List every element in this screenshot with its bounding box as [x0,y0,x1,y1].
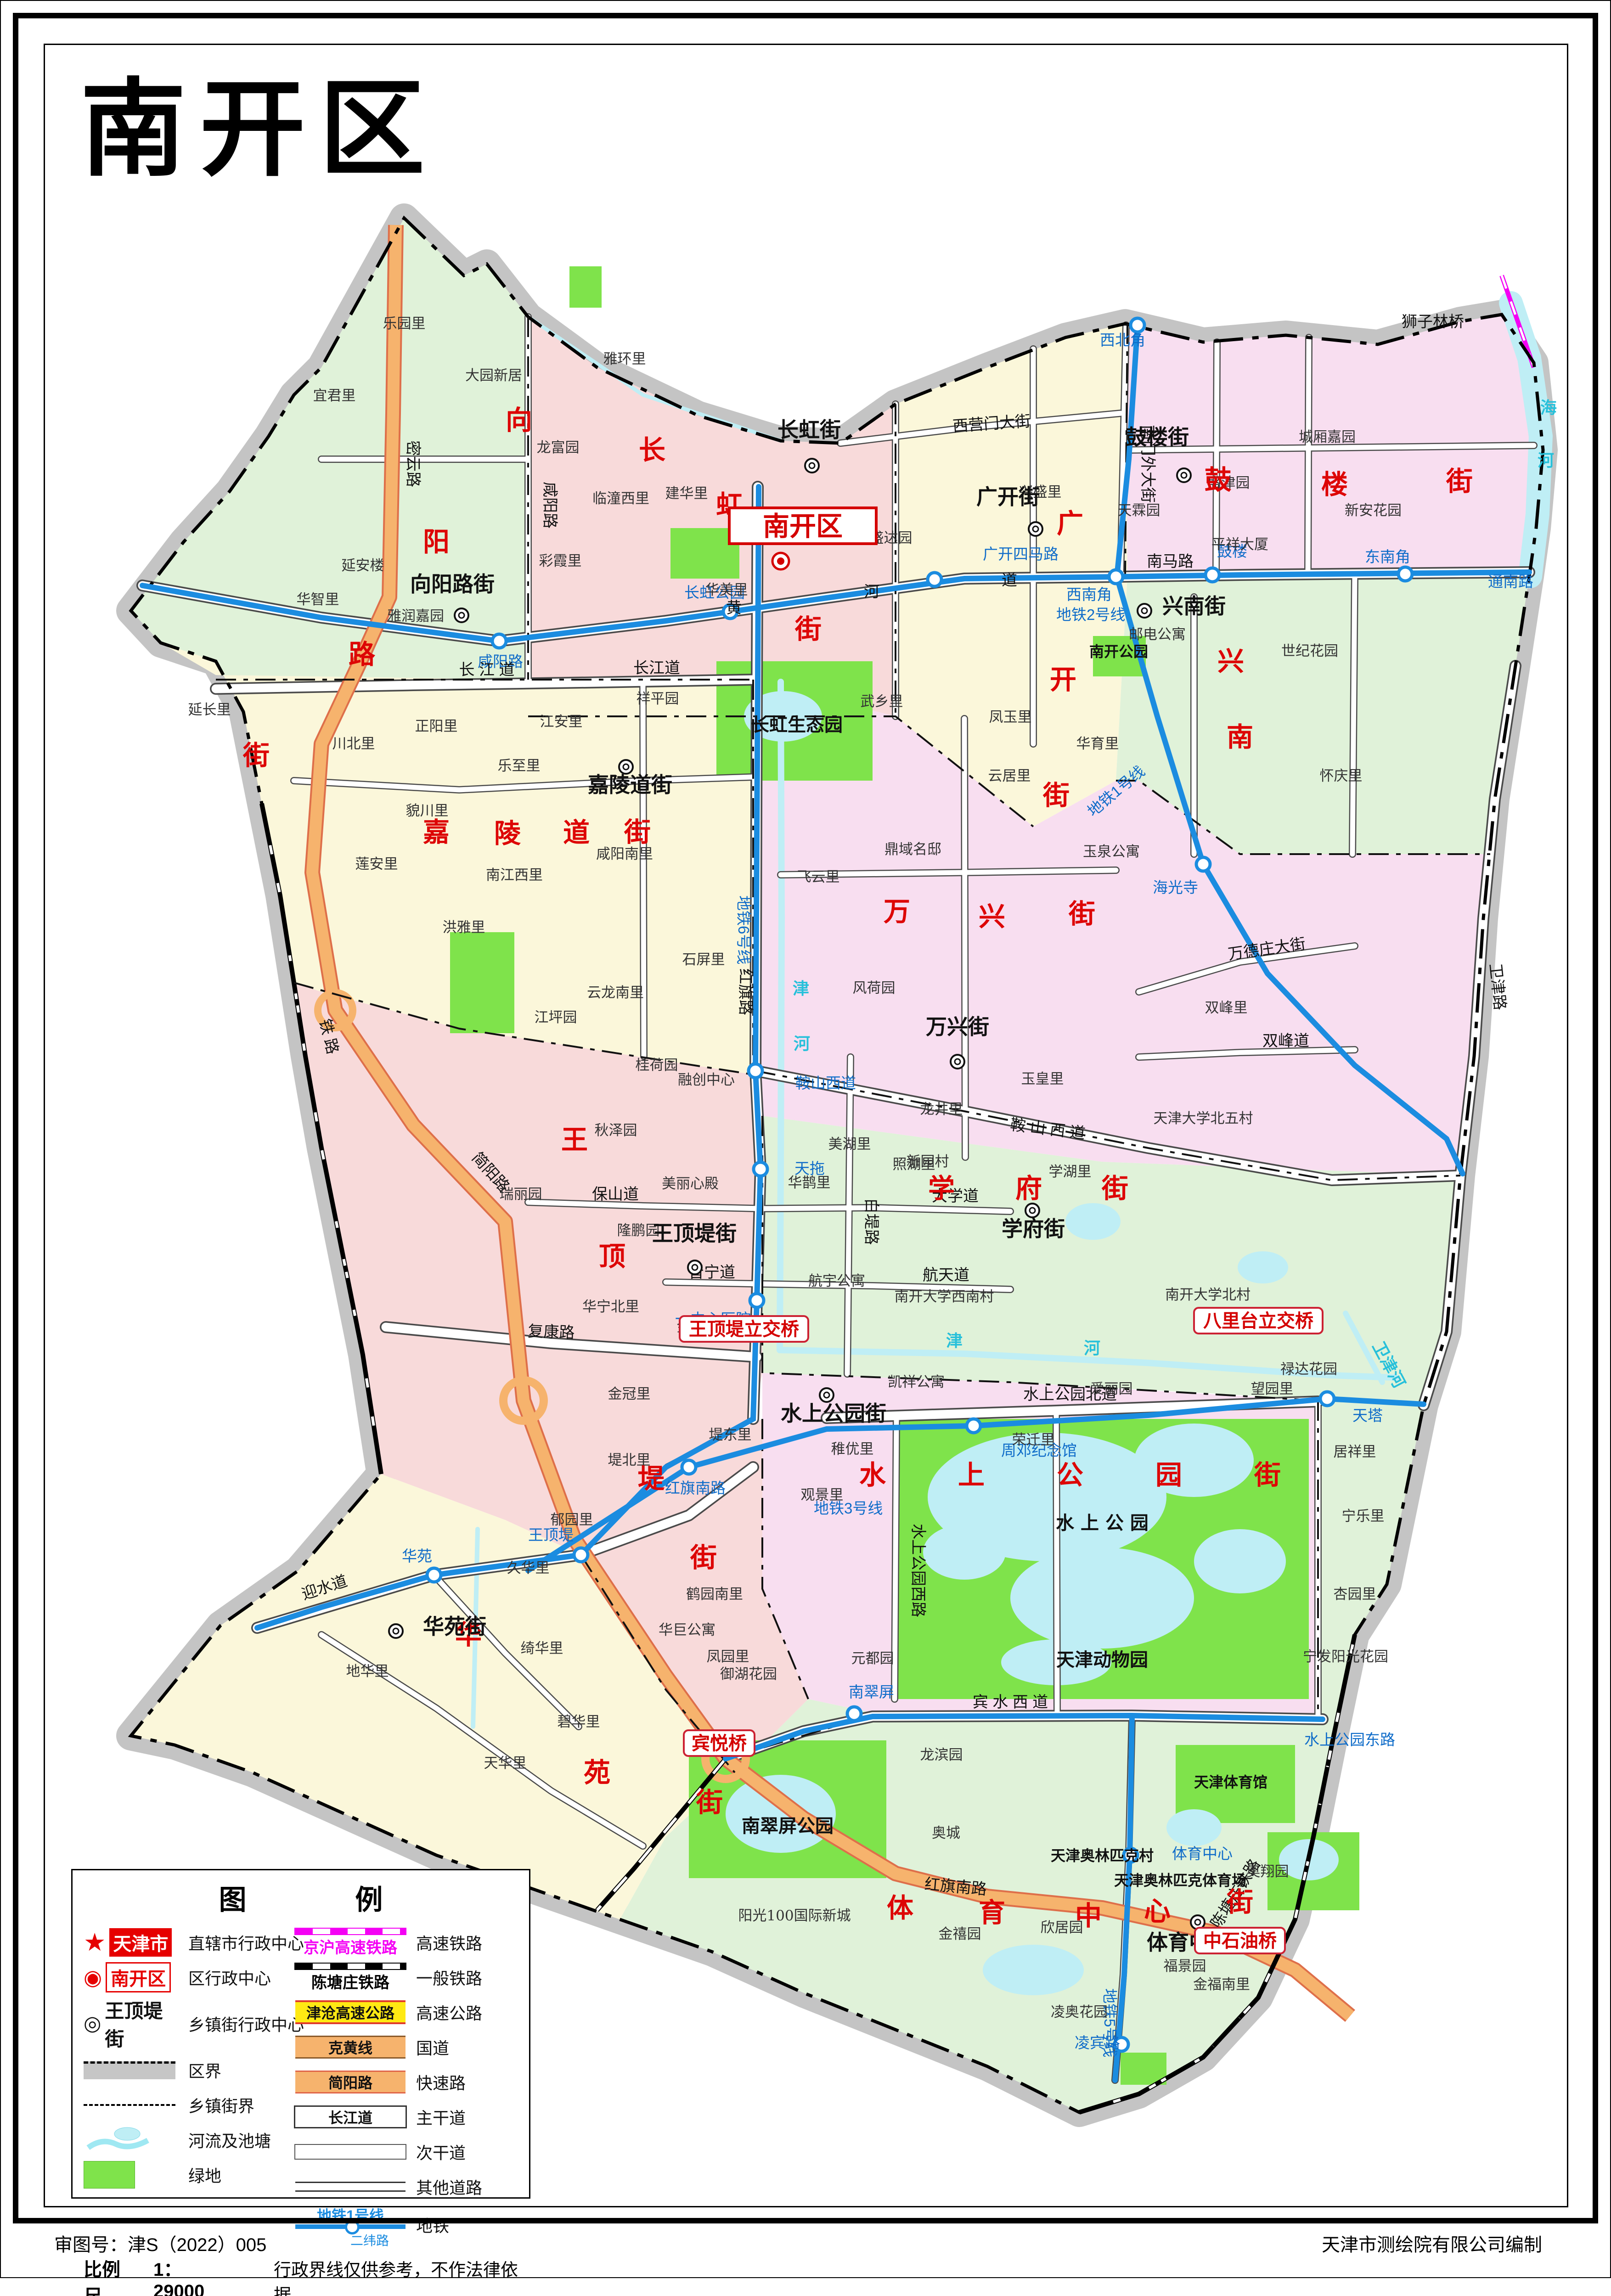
page-title: 南开区 [80,44,439,197]
neighborhood-label: 乐至里 [498,758,541,774]
metro-line-label: 水上公园东路 [1304,1731,1395,1748]
subdistrict-char-鼓楼街: 街 [1446,466,1473,497]
neighborhood-label: 金福南里 [1193,1976,1250,1993]
subdistrict-char-嘉陵道街: 嘉 [423,816,450,848]
park-label: 长虹生态园 [751,714,843,736]
legend-item: 简阳路快速路 [293,2065,518,2099]
station-label: 体育中心 [1172,1845,1233,1862]
neighborhood-label: 双峰里 [1205,1000,1248,1016]
neighborhood-label: 邮电公寓 [1129,626,1186,643]
station-label: 海光寺 [1153,879,1198,896]
subdistrict-char-学府街: 府 [1015,1173,1042,1204]
legend-right-column: 京沪高速铁路高速铁路陈塘庄铁路一般铁路津沧高速公路高速公路克黄线国道简阳路快速路… [293,1924,518,2246]
station-一中心医院 [750,1294,764,1307]
neighborhood-label: 咸阳南里 [596,846,653,862]
subdistrict-char-兴南街: 兴 [1217,646,1244,677]
legend-item: 次干道 [293,2135,518,2168]
subdistrict-char-体育中心街: 体 [887,1892,913,1924]
park-label: 天津体育馆 [1194,1773,1267,1791]
neighborhood-label: 华美里 [705,582,748,598]
subdistrict-char-水上公园街: 水 [859,1459,886,1491]
neighborhood-label: 雅润嘉园 [387,608,444,625]
neighborhood-label: 武乡里 [861,693,903,710]
neighborhood-label: 居祥里 [1334,1444,1376,1460]
legend-item: 京沪高速铁路高速铁路 [293,1926,518,1959]
neighborhood-label: 云居里 [988,768,1031,784]
neighborhood-label: 华智里 [297,591,339,608]
neighborhood-label: 御湖花园 [720,1666,777,1683]
road-label: 南马路 [1147,553,1194,570]
legend-item: 区界 [84,2054,281,2087]
subdistrict-char-鼓楼街: 鼓 [1205,464,1232,495]
subdistrict-char-广开街: 街 [1042,780,1070,811]
legend-item: 津沧高速公路高速公路 [293,1996,518,2029]
neighborhood-label: 云龙南里 [587,985,644,1001]
subdistrict-char-长虹街: 街 [794,613,822,645]
station-label: 西南角 [1066,586,1112,603]
station-label: 西北角 [1100,332,1145,349]
station-鞍山西道 [749,1064,762,1078]
scale-value: 1：29000 [153,2255,228,2296]
river-label: 津 [793,979,809,998]
district-center-name: 南开区 [763,512,843,541]
subdistrict-char-嘉陵道街: 陵 [494,818,521,849]
green-area-icon [84,2161,135,2189]
subdistrict-char-嘉陵道街: 道 [563,817,590,848]
metro-line-label: 通南路 [1488,573,1533,590]
neighborhood-label: 正阳里 [415,718,458,735]
legend-item: ◎王顶堤街乡镇街行政中心 [84,1996,281,2052]
station-东南角 [1398,567,1412,581]
legend-title: 图 例 [84,1878,518,1918]
city-sample: 天津市 [109,1928,172,1957]
footer-publisher: 天津市测绘院有限公司编制 [1322,2230,1542,2257]
subdistrict-name-广开街: 广开街 [976,485,1040,509]
subdistrict-name-长虹街: 长虹街 [777,418,841,442]
neighborhood-label: 郁园里 [551,1512,593,1528]
subdistrict-name-华苑街: 华苑街 [423,1615,486,1638]
river-label: 津 [946,1331,963,1350]
neighborhood-label: 华宁北里 [582,1299,639,1315]
road-label: 红旗路 [737,968,754,1015]
road-label: 长江道 [633,659,680,677]
station-红旗南路 [682,1460,696,1474]
road-label: 狮子林桥 [1402,313,1464,331]
neighborhood-label: 航宇公寓 [808,1273,865,1289]
subdistrict-char-向阳路街: 阳 [423,526,450,557]
neighborhood-label: 建华里 [665,485,708,502]
metro-line-label: 地铁6号线 [735,895,752,964]
bridge-label: 八里台立交桥 [1203,1311,1313,1331]
subdistrict-char-王顶堤街: 王 [561,1124,588,1155]
river-icon [84,2124,152,2156]
neighborhood-label: 凌奥花园 [1051,2004,1108,2020]
neighborhood-label: 南开大学北村 [1165,1287,1250,1303]
neighborhood-label: 秋泽园 [595,1122,637,1139]
road-label: 宾 水 西 道 [973,1694,1048,1711]
legend-item: 长江道主干道 [293,2100,518,2133]
legend-note: 行政界线仅供参考，不作法律依据 [274,2256,518,2296]
road-label: 双峰道 [1262,1032,1309,1050]
neighborhood-label: 金冠里 [608,1386,651,1402]
subdistrict-name-万兴街: 万兴街 [926,1015,989,1039]
neighborhood-label: 彩霞里 [539,553,582,569]
fast-road-icon: 简阳路 [293,2071,408,2093]
subdistrict-char-体育中心街: 心 [1144,1896,1171,1927]
neighborhood-label: 南江西里 [486,867,543,884]
district-sample: 南开区 [106,1962,171,1992]
neighborhood-label: 鼎域名邸 [884,841,941,858]
subdistrict-char-兴南街: 南 [1227,721,1253,753]
station-天拖 [754,1162,767,1176]
neighborhood-label: 美湖里 [828,1136,871,1153]
neighborhood-label: 延长里 [188,702,231,718]
station-华苑 [427,1568,441,1582]
subdistrict-char-王顶堤街: 堤 [638,1463,665,1494]
neighborhood-label: 学湖里 [1049,1164,1092,1180]
neighborhood-label: 凤玉里 [989,709,1032,726]
road-label: 黄 [726,599,742,617]
legend-item: 地铁1号线二纬路地铁 [293,2205,518,2245]
neighborhood-label: 南开大学西南村 [895,1289,994,1305]
station-西南角 [1109,570,1123,584]
neighborhood-label: 宁发阳光花园 [1303,1649,1388,1665]
road-label: 水上公园西路 [909,1524,927,1617]
neighborhood-label: 天津大学北五村 [1154,1110,1253,1127]
metro-icon: 地铁1号线二纬路 [293,2205,408,2245]
legend-item: 克黄线国道 [293,2031,518,2064]
neighborhood-label: 玉泉公寓 [1083,844,1140,860]
subdistrict-char-水上公园街: 上 [958,1459,985,1491]
station-天塔 [1320,1392,1334,1406]
neighborhood-label: 城厢嘉园 [1299,429,1356,445]
neighborhood-label: 祥平园 [637,691,679,707]
secondary-road-icon [293,2144,408,2160]
neighborhood-label: 阳光100国际新城 [738,1908,851,1924]
subdistrict-char-王顶堤街: 顶 [599,1241,625,1272]
metro-line-label: 地铁5号线 [1101,1988,1118,2057]
legend-left-column: ★天津市直辖市行政中心◉南开区区行政中心◎王顶堤街乡镇街行政中心区界乡镇街界河流… [84,1924,281,2246]
subdistrict-char-广开街: 广 [1057,508,1083,539]
bridge-label: 宾悦桥 [692,1733,747,1754]
road-label: 咸阳路 [541,482,558,529]
subdistrict-char-嘉陵道街: 街 [624,816,651,848]
subdistrict-name-学府街: 学府街 [1002,1217,1065,1241]
neighborhood-label: 地华里 [346,1663,389,1680]
neighborhood-label: 鹤园南里 [686,1586,743,1603]
neighborhood-label: 龙井里 [920,1101,963,1118]
neighborhood-label: 奥城 [932,1825,960,1841]
river-label: 海 [1540,398,1557,417]
park-label: 南翠屏公园 [742,1815,834,1837]
neighborhood-label: 元都园 [851,1650,894,1667]
neighborhood-label: 石屏里 [682,951,725,968]
subdistrict-char-华苑街: 苑 [584,1757,610,1788]
town-sample: 王顶堤街 [105,1996,180,2052]
neighborhood-label: 爱丽园 [1090,1381,1133,1397]
neighborhood-label: 世纪花园 [1281,643,1338,659]
national-road-icon: 克黄线 [293,2036,408,2059]
neighborhood-label: 玉皇里 [1021,1071,1064,1087]
station-label: 南翠屏 [849,1683,894,1700]
neighborhood-label: 桂荷园 [636,1057,678,1074]
legend-item: 绿地 [84,2158,281,2191]
subdistrict-char-向阳路街: 向 [506,405,532,436]
hsr-icon: 京沪高速铁路 [293,1928,408,1958]
subdistrict-char-学府街: 街 [1101,1173,1128,1204]
neighborhood-label: 宜君里 [313,388,356,404]
subdistrict-char-广开街: 开 [1050,664,1076,695]
subdistrict-char-华苑街: 街 [696,1787,723,1818]
neighborhood-label: 天华里 [484,1755,527,1772]
station-label: 红旗南路 [665,1480,726,1497]
footer-approval-number: 审图号：津S（2022）005 [54,2230,266,2257]
neighborhood-label: 凤园里 [707,1649,749,1665]
neighborhood-label: 荣迁里 [1012,1432,1055,1448]
neighborhood-label: 乐园里 [383,315,426,332]
subdistrict-char-向阳路街: 路 [349,639,376,670]
station-王顶堤 [574,1548,588,1562]
station-label: 华苑 [402,1548,432,1564]
town-center-icon: ◎ [84,2014,101,2034]
neighborhood-label: 绮华里 [521,1640,563,1657]
station-南翠屏 [847,1707,861,1721]
district-center-icon: ◉ [84,1967,102,1988]
road-label: 复康路 [528,1322,575,1342]
legend-item: ◉南开区区行政中心 [84,1961,281,1994]
subdistrict-name-嘉陵道街: 嘉陵道街 [588,773,672,797]
subdistrict-char-水上公园街: 街 [1254,1459,1281,1491]
legend-item: 乡镇街界 [84,2088,281,2122]
bridge-label: 中石油桥 [1203,1931,1277,1951]
legend-item: 其他道路 [293,2170,518,2203]
neighborhood-label: 照湖里 [893,1156,935,1173]
neighborhood-label: 奥翔园 [1246,1863,1289,1880]
expressway-icon: 津沧高速公路 [293,2000,408,2024]
road-label: 河 [864,583,879,601]
road-label: 长 江 道 [459,661,515,679]
main-road-icon: 长江道 [293,2105,408,2128]
subdistrict-char-体育中心街: 街 [1226,1886,1253,1918]
station-咸阳路 [492,634,506,648]
road-label: 航天道 [923,1266,969,1284]
neighborhood-label: 天霖园 [1118,502,1160,519]
river-label: 河 [1084,1339,1100,1357]
neighborhood-label: 美丽心殿 [662,1176,719,1192]
neighborhood-label: 观景里 [801,1487,844,1503]
neighborhood-label: 碧华里 [558,1714,600,1730]
neighborhood-label: 江坪园 [535,1009,577,1026]
neighborhood-label: 洪雅里 [443,919,485,936]
station-周邓纪念馆 [967,1419,980,1433]
subdistrict-char-万兴街: 街 [1068,898,1095,929]
park-label: 水 上 公 园 [1056,1512,1149,1534]
road-label: 道 [1002,572,1017,589]
neighborhood-label: 稚优里 [831,1441,874,1458]
legend-item: 陈塘庄铁路一般铁路 [293,1961,518,1994]
subdistrict-char-长虹街: 长 [639,434,665,466]
neighborhood-label: 久华里 [507,1560,550,1576]
neighborhood-label: 华育里 [1076,736,1119,752]
neighborhood-label: 江安里 [540,714,583,730]
subdistrict-name-向阳路街: 向阳路街 [410,572,495,596]
subdistrict-name-水上公园街: 水上公园街 [781,1401,886,1425]
neighborhood-label: 龙富园 [537,439,580,456]
neighborhood-label: 瑞丽园 [500,1186,542,1203]
station-label: 鞍山西道 [795,1075,856,1092]
subdistrict-name-兴南街: 兴南街 [1162,594,1226,618]
neighborhood-label: 杏园里 [1334,1586,1376,1603]
subdistrict-char-水上公园街: 公 [1057,1459,1083,1491]
legend-item: ★天津市直辖市行政中心 [84,1926,281,1959]
neighborhood-label: 凯祥公寓 [888,1374,945,1390]
neighborhood-label: 雅环里 [603,351,646,367]
river-label: 河 [1538,451,1554,470]
park-label: 天津动物园 [1056,1649,1148,1671]
neighborhood-label: 望园里 [1251,1381,1294,1397]
neighborhood-label: 宁乐里 [1342,1508,1385,1525]
subdistrict-char-万兴街: 万 [884,896,910,927]
subdistrict-char-万兴街: 兴 [979,901,1005,932]
neighborhood-label: 华鹊里 [788,1175,831,1191]
park-label: 南开公园 [1089,643,1148,660]
station-label: 东南角 [1365,548,1410,565]
subdistrict-char-学府街: 学 [928,1173,955,1204]
scale-label: 比例尺 [84,2255,135,2296]
nankai-district-map-page: { "page":{ "title":"南开区", "footer_left":… [0,0,1611,2278]
road-label: 保山道 [592,1186,639,1203]
neighborhood-label: 怀庆里 [1320,768,1363,784]
subdistrict-char-向阳路街: 街 [242,740,270,771]
town-boundary-icon [84,2104,175,2106]
subdistrict-name-王顶堤街: 王顶堤街 [652,1221,737,1245]
subdistrict-char-王顶堤街: 街 [690,1542,717,1573]
station-海光寺 [1196,857,1210,871]
subdistrict-char-体育中心街: 育 [979,1897,1005,1928]
neighborhood-label: 堤东里 [709,1427,752,1443]
neighborhood-label: 大园新居 [465,367,522,384]
neighborhood-label: 莲安里 [355,856,398,872]
neighborhood-label: 福景园 [1164,1958,1206,1975]
subdistrict-char-水上公园街: 园 [1155,1459,1182,1491]
station-label: 广开四马路 [983,546,1059,563]
neighborhood-label: 临潼西里 [592,490,649,507]
legend-item: 河流及池塘 [84,2123,281,2156]
road-label: 白堤路 [862,1198,880,1245]
neighborhood-label: 新安花园 [1345,502,1402,519]
neighborhood-label: 风荷园 [853,980,896,996]
neighborhood-label: 飞云里 [797,869,840,885]
station-鼓楼 [1205,568,1219,582]
neighborhood-label: 融创中心 [678,1072,735,1088]
neighborhood-label: 川北里 [332,736,375,752]
park-label: 天津奥林匹克村 [1051,1847,1154,1864]
station-广开四马路 [928,573,941,586]
metro-line-label: 地铁2号线 [1056,606,1125,623]
railway-icon: 陈塘庄铁路 [293,1963,408,1992]
legend-scale-row: 比例尺 1：29000 行政界线仅供参考，不作法律依据 [84,2255,518,2296]
neighborhood-label: 延安楼 [342,557,384,574]
subdistrict-name-鼓楼街: 鼓楼街 [1126,425,1189,449]
subdistrict-char-鼓楼街: 楼 [1321,469,1348,500]
neighborhood-label: 龙滨园 [920,1747,963,1763]
neighborhood-label: 平祥大厦 [1211,536,1268,553]
district-boundary-icon [84,2061,175,2079]
subdistrict-char-体育中心街: 中 [1075,1900,1102,1931]
capital-star-icon: ★ [84,1930,106,1955]
legend: 图 例 ★天津市直辖市行政中心◉南开区区行政中心◎王顶堤街乡镇街行政中心区界乡镇… [71,1869,530,2199]
station-西北角 [1131,318,1144,332]
station-label: 王顶堤 [528,1526,574,1543]
neighborhood-label: 金禧园 [939,1926,981,1942]
bridge-label: 王顶堤立交桥 [689,1319,799,1339]
river-label: 河 [794,1034,810,1053]
region-向阳路街 [131,218,528,680]
neighborhood-label: 华巨公寓 [659,1622,715,1638]
neighborhood-label: 禄达花园 [1280,1361,1337,1378]
road-label: 密云路 [404,440,422,487]
station-label: 天塔 [1352,1407,1383,1424]
other-road-icon [293,2182,408,2192]
